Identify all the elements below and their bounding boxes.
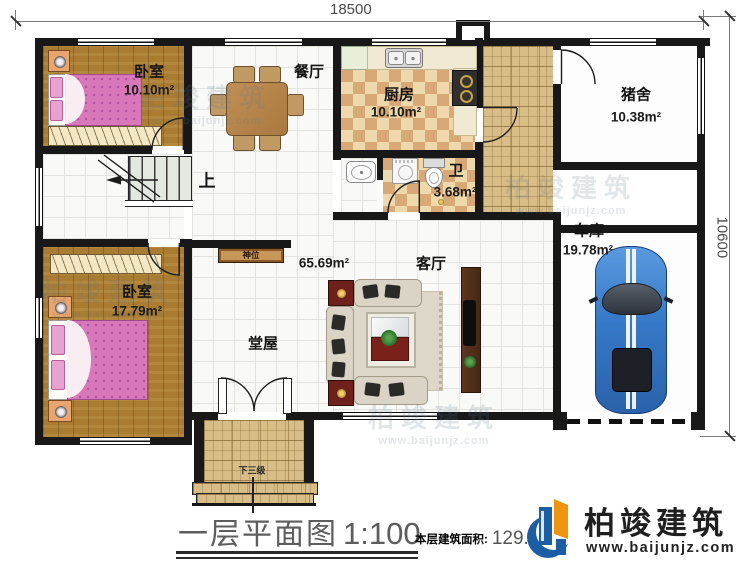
nightstand: [48, 296, 72, 318]
wall-bedroom1-right: [184, 38, 192, 154]
lamp-icon: [337, 389, 346, 398]
sofa-cushion: [331, 338, 345, 354]
nightstand: [48, 400, 72, 422]
brand-name: 柏竣建筑: [584, 498, 728, 543]
bed-pillow: [50, 77, 63, 98]
wall-pigpen-bottom: [553, 162, 705, 170]
end-table: [328, 280, 354, 306]
dining-table: [226, 82, 288, 136]
bed-pillow: [51, 360, 65, 390]
stairs-up-label: 上: [199, 167, 216, 192]
lamp-icon: [55, 406, 67, 418]
room-label-living: 客厅: [416, 253, 446, 274]
wall-kitchen-left: [333, 38, 341, 160]
wall-bath-bottom-b: [420, 212, 561, 220]
title-underline-thin: [176, 557, 418, 559]
room-area-kitchen: 10.10m²: [371, 105, 421, 120]
window-pigpen-top: [590, 38, 656, 46]
bed-pillow: [51, 325, 65, 355]
wall-bedroom1-bottom-a: [35, 146, 152, 154]
wall-shrine-stub: [191, 240, 291, 248]
wall-pigpen-left-b: [553, 84, 561, 170]
floor-area-label: 本层建筑面积:: [415, 530, 488, 550]
entry-door-leaf: [283, 378, 292, 414]
plan-title-text: 一层平面图: [178, 509, 338, 553]
window-pigpen-right: [697, 58, 705, 134]
dimension-right: 10600: [714, 217, 731, 257]
garage-door-dashed: [567, 419, 691, 424]
chair: [233, 66, 255, 83]
window-living-bottom: [343, 412, 437, 420]
floor-drain: [438, 199, 444, 205]
window-dining: [225, 38, 302, 46]
basin: [346, 161, 376, 183]
entry-step-base: [192, 503, 316, 506]
washing-machine: [392, 158, 418, 184]
room-label-hall: 堂屋: [248, 333, 278, 354]
room-label-bedroom2: 卧室: [122, 281, 152, 302]
coffee-table: [366, 312, 416, 368]
window-bedroom2-bottom: [80, 437, 150, 445]
wall-hall-bedroom2-a: [35, 239, 148, 247]
stove: [452, 70, 478, 106]
burner-icon: [460, 75, 473, 88]
dimension-right-line: [729, 16, 730, 436]
car: [595, 246, 667, 414]
wall-pigpen-left-a: [553, 38, 561, 50]
chair: [210, 94, 227, 116]
wall-hall-bottom-a: [184, 412, 218, 420]
sink-basin: [388, 51, 404, 65]
entry-steps-label: 下三级: [238, 464, 265, 477]
fridge: [341, 46, 369, 70]
room-label-kitchen: 厨房: [384, 84, 414, 105]
plant-icon: [381, 330, 397, 346]
basin-bowl: [351, 165, 372, 180]
end-table: [328, 380, 354, 406]
burner-icon: [460, 90, 473, 103]
wall-hall-bottom-b: [286, 412, 343, 420]
car-windshield: [602, 283, 662, 315]
wall-garage-left: [553, 212, 561, 430]
chair: [259, 66, 281, 83]
wall-porch-left: [194, 420, 204, 482]
plan-title-scale: 1:100: [343, 516, 421, 552]
washer-panel: [395, 160, 414, 163]
brand-website: www.baijunjz.com: [586, 540, 735, 556]
toilet-bowl-inner: [429, 172, 439, 184]
wardrobe: [48, 126, 162, 146]
lamp-icon: [337, 289, 346, 298]
window-kitchen: [372, 38, 446, 46]
sofa-cushion: [331, 314, 346, 331]
entry-door-leaf: [218, 378, 227, 414]
wall-hall-bottom-c: [437, 412, 561, 420]
tv-icon: [463, 300, 476, 346]
car-engine-cover: [612, 348, 652, 392]
title-underline-thick: [176, 551, 418, 554]
plant-icon: [464, 356, 476, 368]
sofa-left: [326, 306, 354, 384]
sofa-bottom: [354, 376, 428, 405]
brand-logo-icon: [526, 493, 578, 565]
sofa-cushion: [362, 284, 379, 299]
wall-kitchen-bath: [333, 150, 483, 158]
wall-bath-bottom-a: [333, 212, 388, 220]
room-label-garage: 车库: [574, 220, 604, 241]
room-area-pigpen: 10.38m²: [611, 110, 661, 125]
wall-porch-right: [304, 420, 314, 482]
corridor-floor: [483, 46, 553, 212]
shrine-console: 神位: [218, 248, 284, 263]
window-bedroom2-left: [35, 298, 43, 338]
chair: [259, 134, 281, 151]
kitchen-sink: [385, 48, 423, 68]
dimension-top-line: [15, 21, 705, 22]
room-area-bathroom: 3.68m²: [434, 185, 477, 200]
washer-drum: [398, 165, 413, 180]
room-area-bedroom2: 17.79m²: [112, 304, 162, 319]
dimension-top: 18500: [330, 1, 372, 18]
window-hallway-left: [35, 168, 43, 226]
floor-plan: 神位: [0, 0, 750, 570]
sofa-cushion: [388, 382, 404, 397]
shrine-console-top: 神位: [221, 251, 281, 260]
chair: [233, 134, 255, 151]
lamp-icon: [54, 56, 66, 68]
wardrobe: [50, 254, 162, 274]
sofa-cushion: [331, 361, 345, 377]
wall-alcove-stub: [377, 150, 383, 180]
chair: [287, 94, 304, 116]
watermark-sub: www.baijunjz.com: [368, 435, 500, 447]
window-bedroom1: [78, 38, 154, 46]
room-area-bedroom1: 10.10m²: [124, 83, 174, 98]
bed-pillow: [50, 100, 63, 121]
room-area-hall: 65.69m²: [299, 256, 349, 271]
room-area-garage: 19.78m²: [563, 243, 613, 258]
entry-steps-leader: [252, 477, 254, 513]
stairs-treads: [128, 156, 192, 202]
nightstand: [48, 50, 70, 72]
sofa-cushion: [384, 284, 400, 298]
room-label-bedroom1: 卧室: [134, 61, 164, 82]
sofa-cushion: [364, 382, 380, 397]
wall-garage-stub-r: [691, 412, 705, 430]
room-label-bathroom: 卫: [448, 160, 463, 181]
stairs-landing: [125, 200, 193, 207]
sofa-top: [354, 279, 422, 307]
sink-basin: [405, 51, 421, 65]
plan-title: 一层平面图 1:100: [178, 509, 421, 553]
room-label-pigpen: 猪舍: [621, 84, 651, 105]
room-label-dining: 餐厅: [294, 61, 324, 82]
lamp-icon: [55, 302, 67, 314]
